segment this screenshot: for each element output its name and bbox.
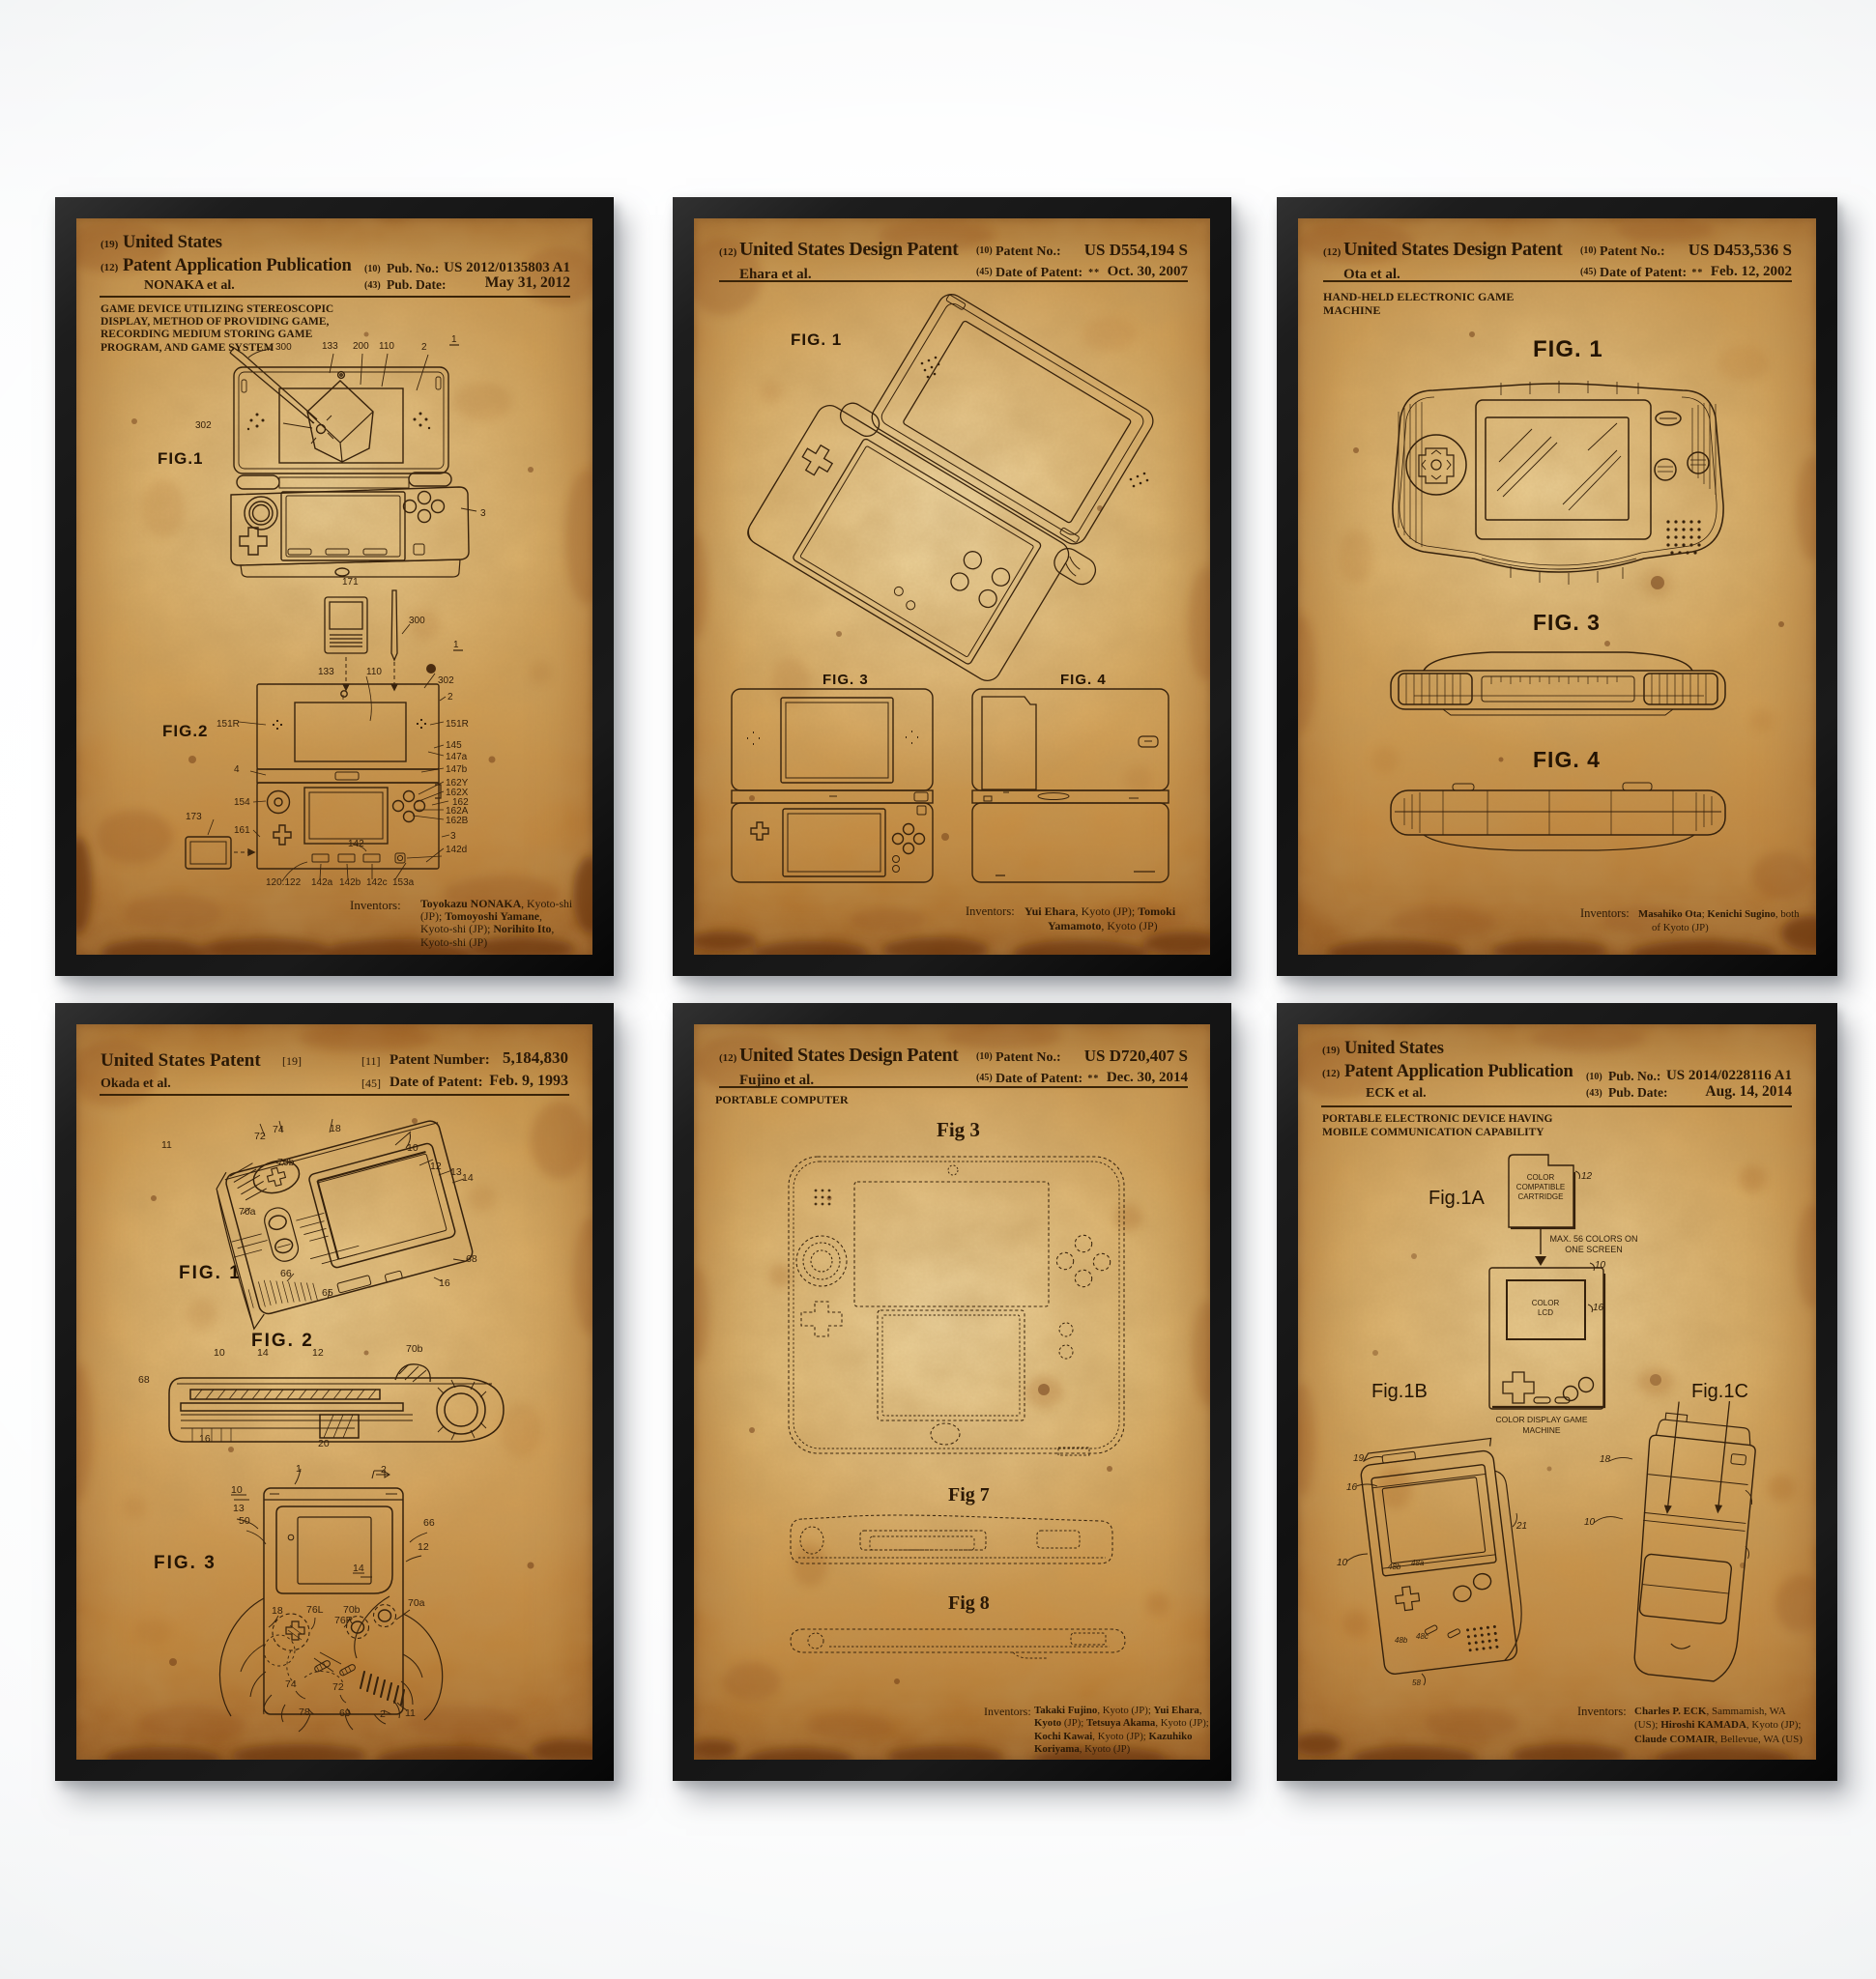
svg-text:2: 2 (447, 692, 453, 703)
svg-text:145: 145 (446, 740, 462, 751)
svg-text:12: 12 (430, 1161, 442, 1172)
svg-text:2: 2 (381, 1464, 387, 1476)
svg-text:18: 18 (272, 1605, 283, 1617)
svg-text:133: 133 (318, 667, 334, 677)
svg-text:COLOR: COLOR (1527, 1173, 1555, 1182)
svg-text:18: 18 (1600, 1454, 1611, 1465)
svg-text:1: 1 (451, 334, 457, 345)
svg-text:70b: 70b (277, 1157, 295, 1168)
svg-text:18: 18 (330, 1123, 341, 1134)
svg-text:70b: 70b (343, 1604, 361, 1616)
svg-text:142c: 142c (366, 877, 388, 888)
svg-text:2: 2 (421, 342, 427, 353)
svg-text:20: 20 (318, 1438, 330, 1449)
svg-text:120.122: 120.122 (266, 877, 302, 888)
svg-text:13: 13 (233, 1503, 245, 1514)
svg-text:142b: 142b (339, 877, 361, 888)
svg-text:72: 72 (332, 1681, 344, 1693)
svg-text:171: 171 (342, 577, 359, 588)
svg-text:19: 19 (1353, 1453, 1365, 1464)
svg-text:ONE SCREEN: ONE SCREEN (1565, 1245, 1623, 1254)
svg-text:3: 3 (450, 831, 456, 842)
svg-text:70b: 70b (406, 1343, 423, 1355)
svg-text:12: 12 (418, 1541, 429, 1553)
svg-text:10: 10 (1337, 1558, 1348, 1568)
svg-text:66: 66 (280, 1268, 292, 1279)
svg-text:16: 16 (439, 1277, 450, 1289)
svg-text:200: 200 (353, 341, 369, 352)
svg-text:16: 16 (1346, 1482, 1358, 1493)
svg-text:147b: 147b (446, 764, 468, 775)
svg-text:110: 110 (379, 341, 394, 352)
svg-text:12: 12 (1581, 1171, 1593, 1182)
svg-text:161: 161 (234, 825, 250, 836)
svg-text:11: 11 (161, 1139, 172, 1151)
svg-text:142d: 142d (446, 845, 467, 855)
svg-text:21: 21 (1515, 1521, 1527, 1532)
svg-text:300: 300 (409, 616, 425, 626)
svg-text:1: 1 (296, 1463, 302, 1475)
svg-text:68: 68 (138, 1374, 150, 1386)
svg-text:66: 66 (423, 1517, 435, 1529)
svg-text:COLOR DISPLAY GAME: COLOR DISPLAY GAME (1495, 1415, 1587, 1424)
svg-text:48b: 48b (1388, 1563, 1401, 1571)
svg-text:10: 10 (407, 1142, 418, 1154)
svg-text:13: 13 (450, 1166, 462, 1178)
svg-text:162B: 162B (446, 816, 469, 826)
svg-text:65: 65 (322, 1287, 333, 1299)
svg-text:302: 302 (438, 675, 454, 686)
svg-text:70a: 70a (239, 1206, 256, 1218)
svg-text:11: 11 (405, 1707, 416, 1719)
svg-text:69: 69 (339, 1707, 351, 1719)
svg-text:78: 78 (299, 1707, 310, 1718)
svg-text:4: 4 (234, 764, 240, 775)
svg-text:MACHINE: MACHINE (1522, 1425, 1561, 1435)
svg-text:76L: 76L (306, 1604, 324, 1616)
svg-text:110: 110 (366, 667, 382, 677)
svg-text:151R: 151R (216, 719, 240, 730)
svg-text:10: 10 (231, 1484, 243, 1496)
svg-text:48c: 48c (1416, 1632, 1429, 1641)
svg-text:154: 154 (234, 797, 250, 808)
svg-text:68: 68 (466, 1253, 477, 1265)
svg-text:1: 1 (453, 640, 459, 650)
svg-text:58: 58 (1412, 1678, 1421, 1687)
svg-text:16: 16 (1593, 1303, 1604, 1313)
svg-text:142a: 142a (311, 877, 333, 888)
svg-text:MAX. 56 COLORS ON: MAX. 56 COLORS ON (1549, 1234, 1637, 1244)
svg-text:14: 14 (462, 1172, 474, 1184)
svg-text:147a: 147a (446, 752, 468, 762)
svg-text:72: 72 (254, 1131, 266, 1142)
svg-text:173: 173 (186, 812, 202, 822)
svg-text:48b: 48b (1395, 1636, 1408, 1645)
svg-text:74: 74 (273, 1124, 284, 1135)
svg-text:10: 10 (1595, 1260, 1606, 1271)
svg-text:153a: 153a (392, 877, 415, 888)
svg-text:LCD: LCD (1538, 1308, 1553, 1317)
svg-text:2: 2 (380, 1708, 386, 1720)
svg-text:3: 3 (480, 508, 486, 519)
svg-text:14: 14 (353, 1563, 364, 1574)
svg-text:142: 142 (348, 839, 364, 849)
svg-text:50: 50 (239, 1515, 250, 1527)
svg-text:10: 10 (1584, 1517, 1596, 1528)
svg-text:COMPATIBLE: COMPATIBLE (1516, 1183, 1565, 1191)
svg-text:48a: 48a (1411, 1559, 1425, 1567)
svg-text:74: 74 (285, 1678, 297, 1690)
svg-text:CARTRIDGE: CARTRIDGE (1518, 1192, 1564, 1201)
svg-text:16: 16 (199, 1433, 211, 1445)
svg-text:70a: 70a (408, 1597, 425, 1609)
svg-text:302: 302 (195, 420, 212, 431)
svg-text:76R: 76R (334, 1615, 354, 1626)
svg-text:COLOR: COLOR (1532, 1299, 1560, 1307)
svg-text:10: 10 (214, 1347, 225, 1359)
svg-text:151R: 151R (446, 719, 469, 730)
